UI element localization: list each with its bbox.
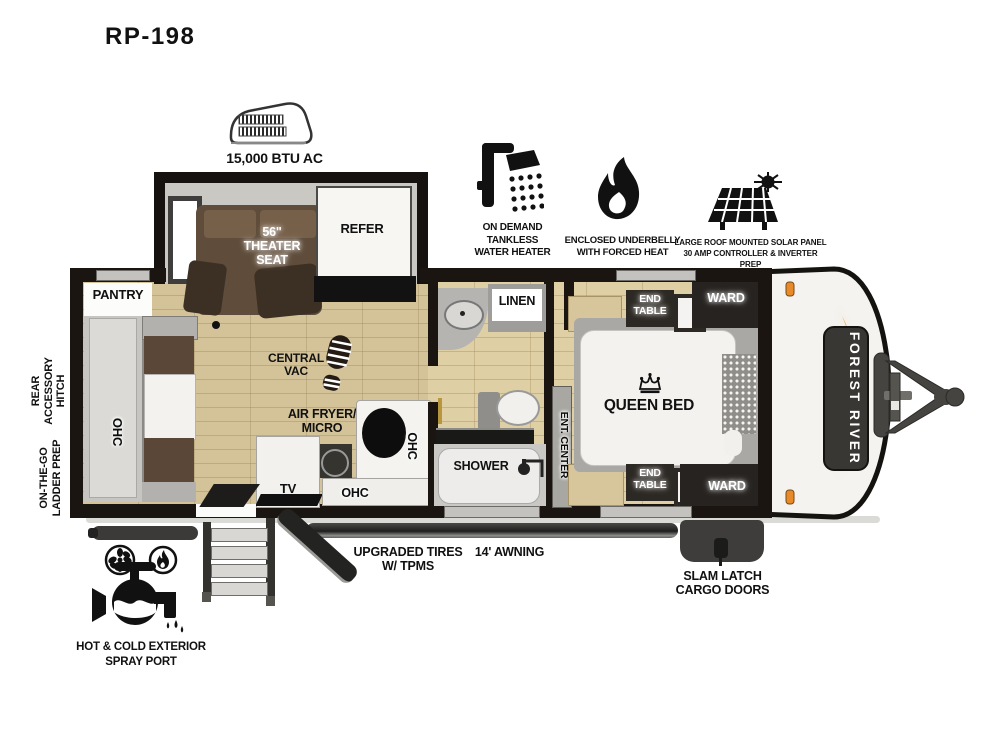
- faucet-icon: [90, 560, 190, 638]
- window: [616, 270, 696, 281]
- marker-light-icon: [786, 282, 794, 296]
- cup-holder: [212, 321, 220, 329]
- tv-screen: [255, 494, 323, 506]
- wardrobe-top-label: WARD: [696, 292, 756, 306]
- flame-icon: [594, 156, 646, 222]
- theater-seat-armrest: [254, 263, 323, 319]
- end-table-bottom-label: END TABLE: [626, 468, 674, 491]
- entry-steps-foot: [266, 596, 275, 606]
- window: [444, 506, 540, 518]
- entry-steps-tread: [211, 546, 268, 560]
- entry-steps-tread: [211, 582, 268, 596]
- galley-cabinet-brown: [144, 336, 194, 374]
- refer-label: REFER: [318, 222, 406, 236]
- ohc-kitchen-label: OHC: [398, 424, 418, 468]
- kitchen-counter-dark: [314, 276, 416, 302]
- cargo-door-latch-stem: [719, 558, 722, 566]
- ac-label: 15,000 BTU AC: [192, 151, 357, 166]
- ladder-prep-label: ON-THE-GO LADDER PREP: [38, 423, 66, 533]
- awning-label: 14' AWNING: [452, 546, 567, 560]
- bath-sink-drain: [460, 311, 465, 316]
- floorplan-page: RP-198 15,000 BTU AC ON DEMAND TANKLESS …: [0, 0, 1000, 750]
- shower-head-icon: [476, 141, 544, 219]
- ent-center-label: ENT. CENTER: [555, 397, 569, 493]
- bath-door-hinge: [438, 398, 442, 424]
- awning-bar: [306, 523, 678, 538]
- window: [96, 270, 150, 281]
- ohc-left-label: OHC: [100, 402, 124, 462]
- theater-seat-armrest: [183, 260, 228, 317]
- ac-unit-icon: [222, 98, 314, 154]
- toilet-bowl: [496, 390, 540, 426]
- wall-right: [758, 268, 772, 518]
- page-title: RP-198: [105, 24, 225, 50]
- queen-bed-label: QUEEN BED: [588, 397, 710, 414]
- a-frame-hitch-icon: [850, 345, 968, 450]
- cooktop-burner: [321, 449, 349, 477]
- cargo-label: SLAM LATCH CARGO DOORS: [660, 570, 785, 598]
- ohc-base-label: OHC: [330, 487, 380, 501]
- solar-panel-icon: [706, 170, 784, 234]
- marker-light-icon: [786, 490, 794, 504]
- crown-icon: [636, 372, 664, 396]
- linen-label: LINEN: [492, 289, 542, 321]
- entry-steps-tread: [211, 528, 268, 542]
- tires-label: UPGRADED TIRES W/ TPMS: [348, 546, 468, 574]
- wardrobe-bottom-label: WARD: [694, 480, 760, 494]
- entry-steps-rail: [203, 522, 211, 594]
- galley-cabinet-white: [144, 374, 196, 440]
- window: [600, 506, 692, 518]
- entry-steps-foot: [202, 592, 211, 602]
- end-table-top-label: END TABLE: [626, 294, 674, 317]
- bath-wall-left-upper: [428, 282, 438, 366]
- pantry-label: PANTRY: [84, 283, 152, 316]
- rear-bumper: [92, 526, 198, 540]
- theater-seat-label: 56" THEATER SEAT: [226, 226, 318, 267]
- shower-sprayer-icon: [516, 455, 544, 487]
- rear-bumper-cap: [88, 528, 98, 538]
- galley-cabinet-brown: [144, 438, 194, 482]
- wall-top-right: [420, 268, 772, 282]
- bed-pillow: [724, 430, 742, 456]
- wall-left: [70, 268, 83, 518]
- shower-label: SHOWER: [444, 460, 518, 474]
- cargo-door-latch: [714, 538, 728, 558]
- spray-port-label: HOT & COLD EXTERIOR SPRAY PORT: [76, 640, 206, 670]
- galley-base: [142, 482, 196, 502]
- headboard: [722, 354, 756, 434]
- entry-steps-tread: [211, 564, 268, 578]
